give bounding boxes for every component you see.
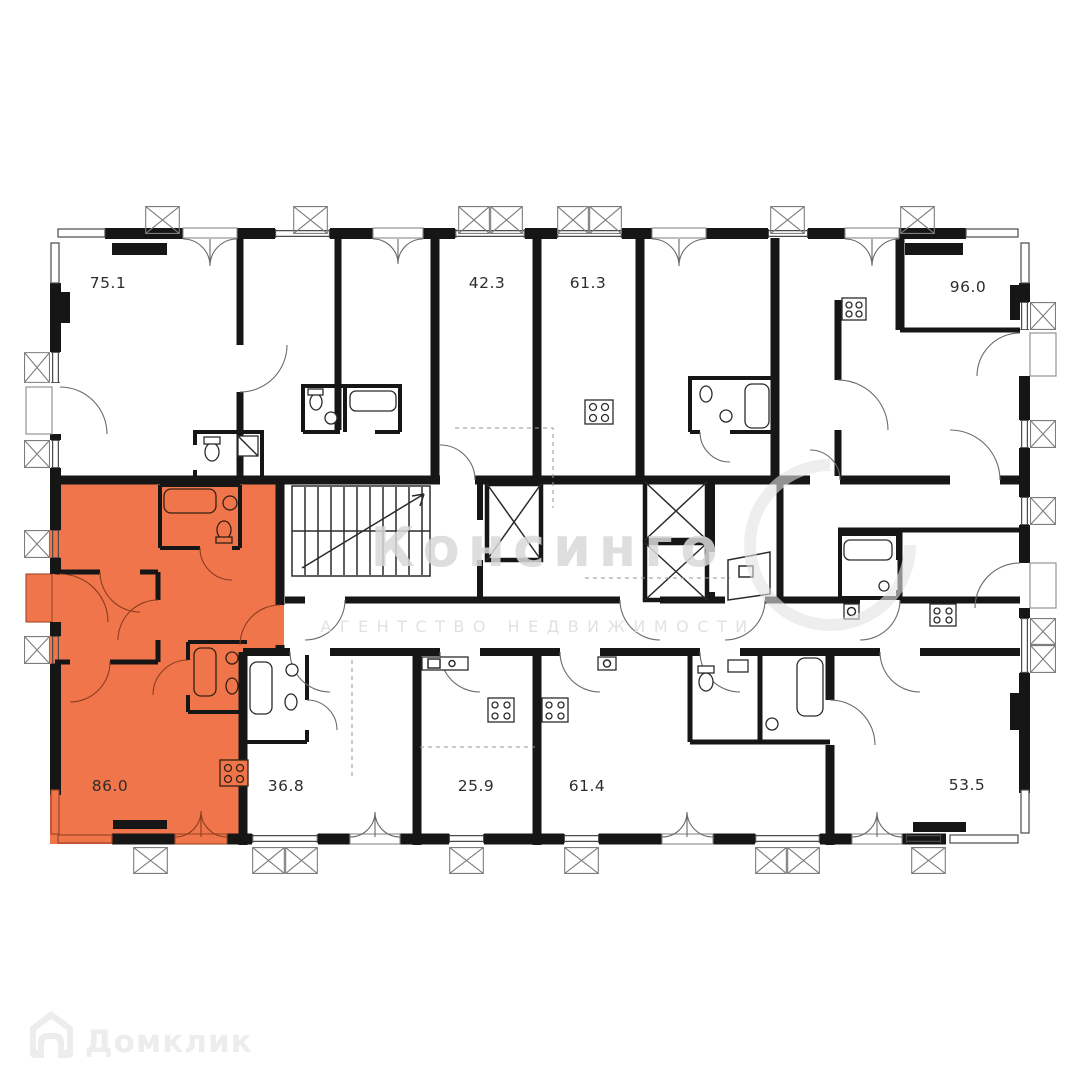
toilet-icon — [205, 443, 219, 461]
sink-icon — [325, 412, 337, 424]
toilet-icon — [310, 394, 322, 410]
wall-pier — [1010, 693, 1020, 730]
sink-icon — [879, 581, 889, 591]
floor-plan-image: 75.1 42.3 61.3 96.0 86.0 36.8 25.9 61.4 … — [0, 0, 1080, 1080]
area-label-75-1: 75.1 — [90, 274, 127, 292]
toilet-icon — [699, 673, 713, 691]
area-label-61-4: 61.4 — [569, 777, 606, 795]
window-ledge — [905, 243, 963, 255]
stove-icon — [220, 760, 248, 786]
area-label-86-0: 86.0 — [92, 777, 129, 795]
sink-icon — [223, 496, 237, 510]
window-ledge — [112, 243, 167, 255]
area-label-61-3: 61.3 — [570, 274, 607, 292]
domklik-logo: Домклик — [30, 1011, 253, 1060]
watermark-subtitle: АГЕНТСТВО НЕДВИЖИМОСТИ — [320, 617, 755, 636]
bathtub-icon — [797, 658, 823, 716]
bathtub-icon — [194, 648, 216, 696]
area-label-25-9: 25.9 — [458, 777, 495, 795]
house-icon — [30, 1011, 73, 1058]
sink-icon — [766, 718, 778, 730]
toilet-icon — [217, 521, 231, 539]
area-label-36-8: 36.8 — [268, 777, 305, 795]
bathtub-icon — [745, 384, 769, 428]
area-label-96-0: 96.0 — [950, 278, 987, 296]
area-label-42-3: 42.3 — [469, 274, 506, 292]
sink-icon — [720, 410, 732, 422]
kitchen-sink-icon — [422, 657, 468, 670]
sink-icon — [286, 664, 298, 676]
wall-pier — [60, 292, 70, 323]
bathtub-icon — [350, 391, 396, 411]
window-ledge — [113, 820, 167, 829]
toilet-icon — [226, 678, 238, 694]
stove-icon — [488, 698, 514, 722]
bathtub-icon — [250, 662, 272, 714]
wall-pier — [1010, 285, 1020, 320]
stove-icon — [542, 698, 568, 722]
toilet-icon — [285, 694, 297, 710]
logo-label: Домклик — [85, 1024, 253, 1060]
sink-icon — [728, 660, 748, 672]
balcony-door-frame — [26, 574, 52, 622]
area-label-53-5: 53.5 — [949, 776, 986, 794]
stove-icon — [842, 298, 866, 320]
sink-icon — [226, 652, 238, 664]
window-ledge — [913, 822, 966, 832]
stove-icon — [585, 400, 613, 424]
stove-icon — [930, 604, 956, 626]
toilet-icon — [700, 386, 712, 402]
watermark-brand: Консинго — [370, 516, 725, 579]
kitchen-sink-icon — [598, 657, 616, 670]
bathtub-icon — [164, 489, 216, 513]
bathtub-icon — [844, 540, 892, 560]
